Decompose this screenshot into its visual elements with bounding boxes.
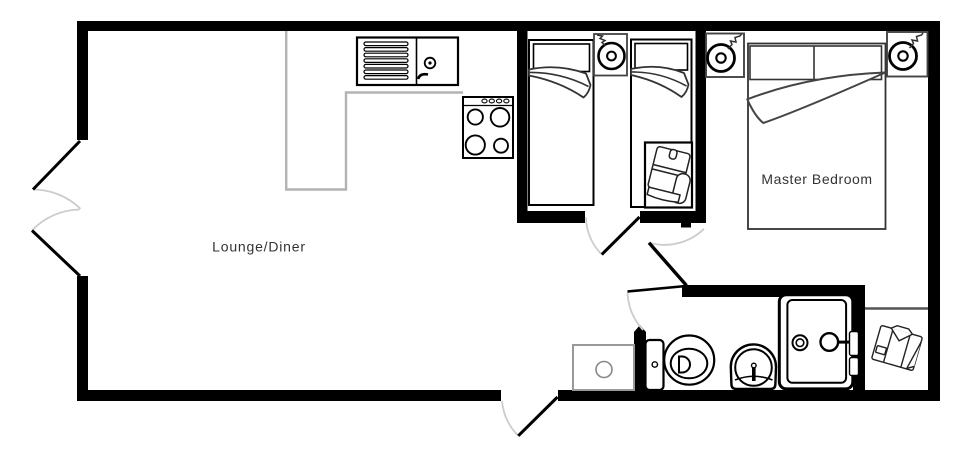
svg-text:Master Bedroom: Master Bedroom: [761, 171, 872, 187]
svg-text:Lounge/Diner: Lounge/Diner: [212, 239, 306, 255]
